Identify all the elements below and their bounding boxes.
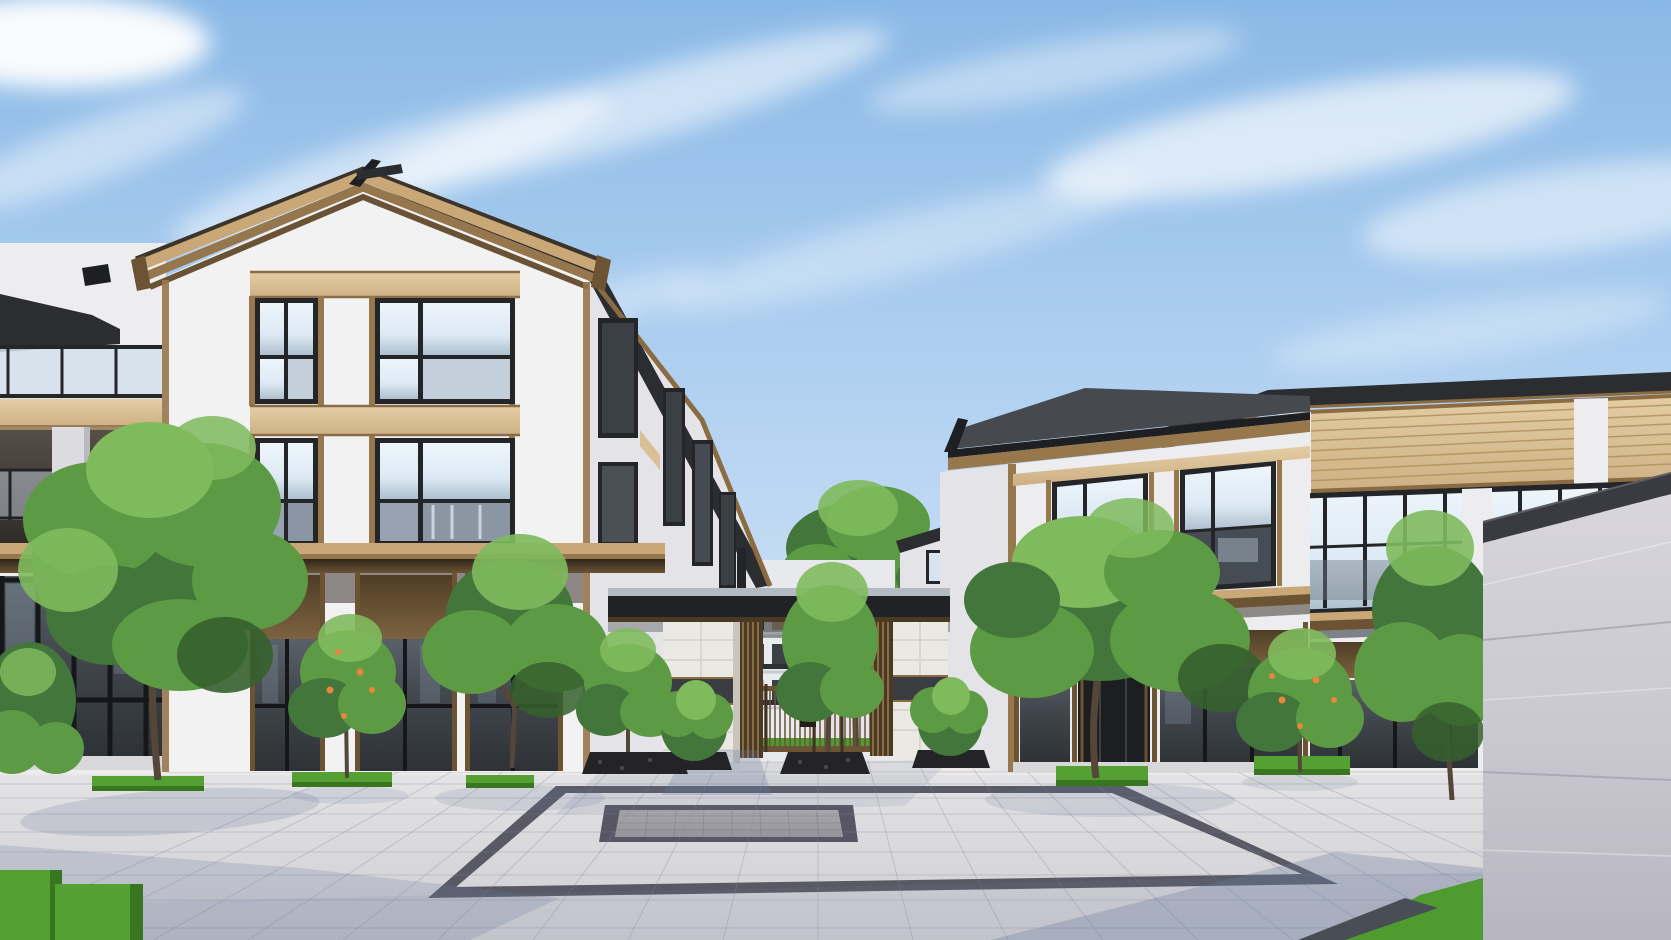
right-clerestory [1277, 395, 1671, 495]
scene-render [0, 0, 1671, 940]
terrace-railing-upper [0, 345, 182, 399]
left-windows-3f [249, 296, 515, 406]
hedge-strip [292, 772, 392, 787]
hedge-square [1254, 756, 1350, 775]
render-canvas [0, 0, 1671, 940]
foreground-hedge-box [55, 884, 143, 940]
spandrel-band [250, 406, 520, 436]
foreground-hedge-box [0, 870, 62, 940]
wall-face [1483, 494, 1671, 940]
left-windows-2f [249, 436, 515, 546]
rock-planter [780, 752, 870, 774]
gate-louver-left [740, 622, 763, 758]
hedge-strip [92, 776, 204, 791]
hedge-strip [466, 775, 534, 788]
hedge-square [1056, 766, 1148, 786]
pediment-band [250, 272, 520, 298]
